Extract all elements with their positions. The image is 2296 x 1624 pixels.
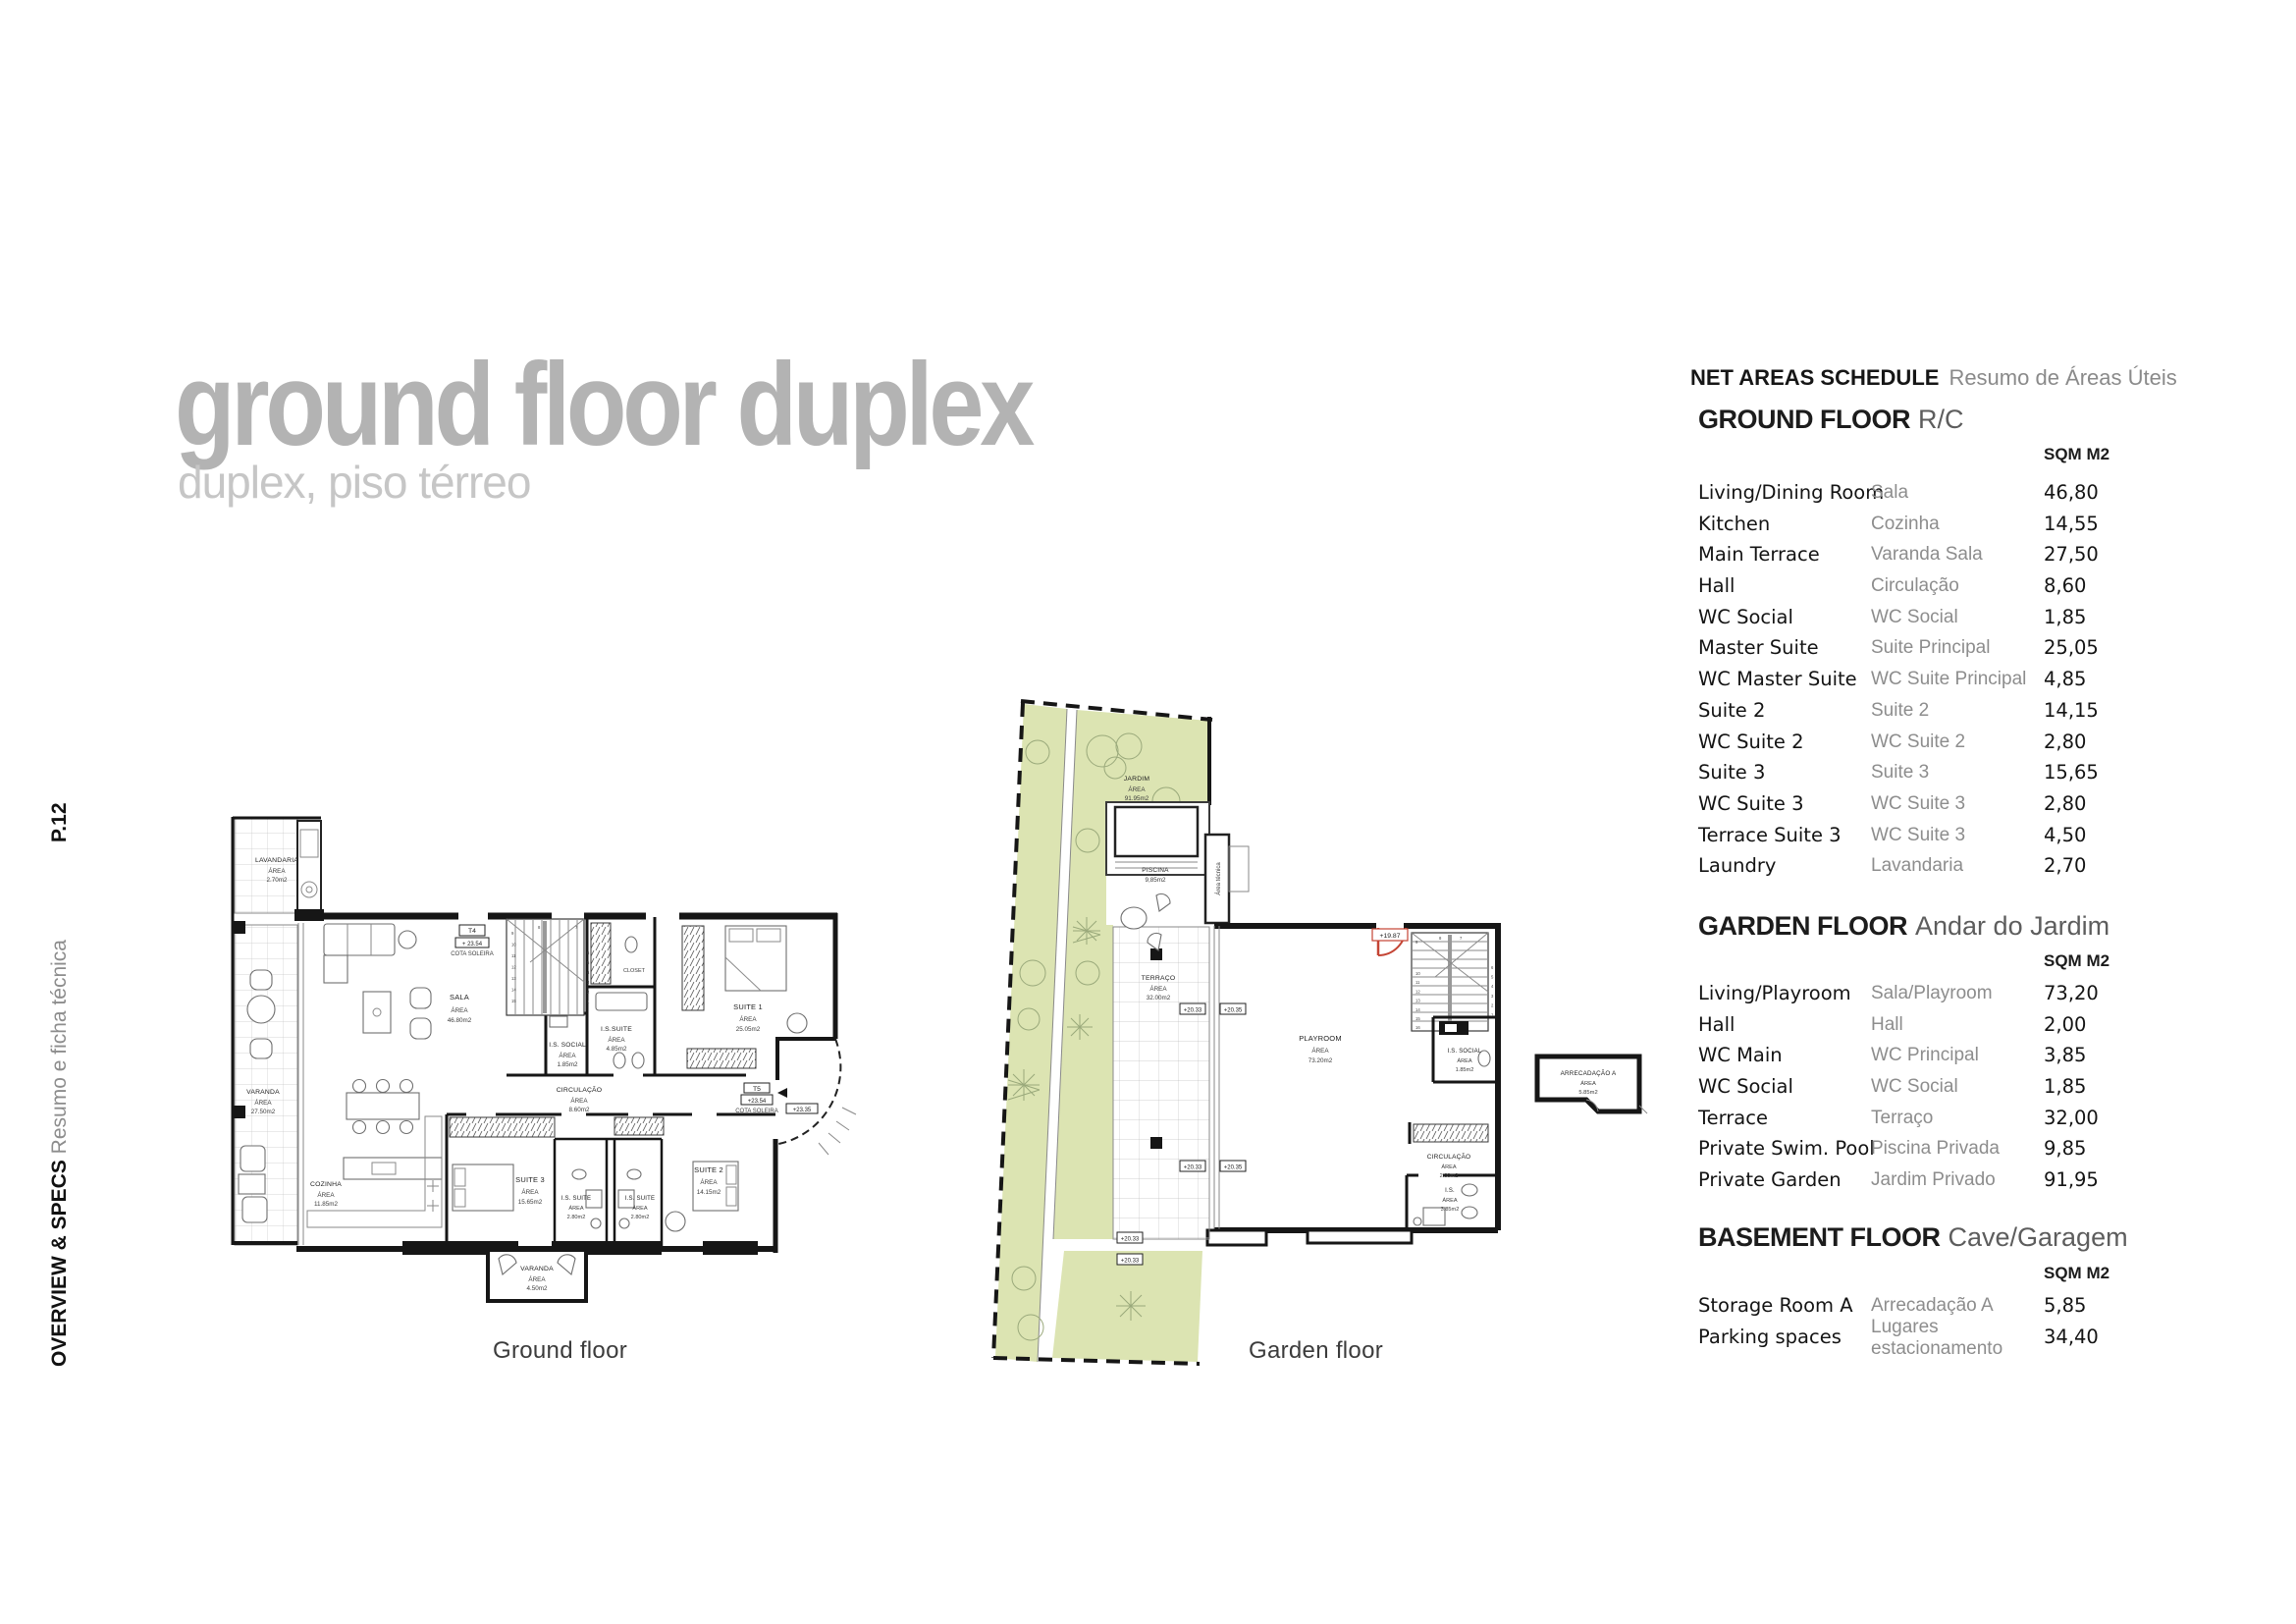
row-pt: Piscina Privada — [1871, 1138, 2000, 1160]
row-en: WC Suite 3 — [1698, 792, 1804, 815]
svg-text:25.05m2: 25.05m2 — [736, 1026, 761, 1033]
row-val: 25,05 — [2044, 636, 2099, 659]
table-row: WC MainWC Principal3,85 — [1690, 1044, 2162, 1075]
svg-text:ÁREA: ÁREA — [1580, 1080, 1596, 1087]
svg-text:4.50m2: 4.50m2 — [526, 1285, 548, 1292]
table-row: WC Master SuiteWC Suite Principal4,85 — [1690, 668, 2162, 699]
stair-number: 4 — [1491, 984, 1494, 989]
table-row: TerraceTerraço32,00 — [1690, 1107, 2162, 1138]
table-row: WC Suite 2WC Suite 22,80 — [1690, 731, 2162, 762]
svg-text:4.85m2: 4.85m2 — [606, 1046, 627, 1053]
row-en: WC Main — [1698, 1044, 1783, 1066]
svg-text:+20.35: +20.35 — [1224, 1165, 1243, 1171]
row-val: 2,80 — [2044, 792, 2086, 815]
section-heading: BASEMENT FLOORCave/Garagem — [1698, 1222, 2128, 1253]
section-heading: GARDEN FLOORAndar do Jardim — [1698, 911, 2109, 942]
row-pt: WC Social — [1871, 607, 1958, 628]
svg-text:ÁREA: ÁREA — [317, 1190, 335, 1199]
marker-t5-level: +23.54 — [748, 1099, 767, 1105]
section-heading-pt: R/C — [1918, 405, 1964, 434]
row-val: 2,00 — [2044, 1013, 2086, 1036]
svg-text:ÁREA: ÁREA — [568, 1205, 584, 1212]
svg-text:ÁREA: ÁREA — [1457, 1057, 1472, 1064]
svg-text:5.85m2: 5.85m2 — [1578, 1090, 1597, 1096]
page-number: P.12 — [49, 803, 70, 843]
stair-number: 13 — [1415, 999, 1420, 1003]
svg-text:32.00m2: 32.00m2 — [1147, 995, 1171, 1001]
stair-number: 10 — [511, 943, 516, 947]
svg-text:ÁREA: ÁREA — [570, 1096, 588, 1105]
row-pt: Lugares estacionamento — [1871, 1317, 2002, 1360]
svg-text:1.85m2: 1.85m2 — [557, 1061, 578, 1068]
svg-text:ÁREA: ÁREA — [700, 1177, 718, 1186]
svg-text:ÁREA: ÁREA — [521, 1187, 539, 1196]
ground-stairs — [507, 919, 584, 1015]
label-suite2: SUITE 2 — [694, 1165, 723, 1174]
row-pt: Sala — [1871, 482, 1908, 504]
section-rows: Storage Room AArrecadação A5,85Parking s… — [1690, 1294, 2162, 1356]
row-val: 2,70 — [2044, 854, 2086, 877]
row-en: Living/Playroom — [1698, 982, 1851, 1004]
label-g-circulacao: CIRCULAÇÃO — [1427, 1152, 1471, 1161]
table-row: KitchenCozinha14,55 — [1690, 513, 2162, 544]
marker-door-level: +19.87 — [1380, 933, 1401, 940]
label-is-social: I.S. SOCIAL — [549, 1042, 586, 1049]
stair-number: 16 — [1415, 1025, 1420, 1030]
row-pt: WC Suite Principal — [1871, 669, 2026, 690]
row-en: Laundry — [1698, 854, 1776, 877]
schedule-header: NET AREAS SCHEDULEResumo de Áreas Úteis — [1690, 365, 2177, 391]
row-val: 3,85 — [2044, 1044, 2086, 1066]
table-row: Suite 2Suite 214,15 — [1690, 699, 2162, 731]
row-pt: Terraço — [1871, 1108, 1933, 1129]
label-sala: SALA — [450, 993, 469, 1001]
page-subtitle: duplex, piso térreo — [178, 460, 530, 505]
svg-text:ÁREA: ÁREA — [254, 1098, 272, 1107]
label-cozinha: COZINHA — [310, 1181, 342, 1188]
section-heading: GROUND FLOORR/C — [1698, 405, 1964, 435]
label-playroom: PLAYROOM — [1299, 1034, 1342, 1043]
unit-label: SQM M2 — [2044, 445, 2109, 464]
svg-text:ÁREA: ÁREA — [608, 1035, 625, 1044]
row-en: WC Social — [1698, 1075, 1793, 1098]
stair-number: 5 — [1491, 975, 1494, 980]
stair-number: 15 — [1415, 1016, 1420, 1021]
label-terraco: TERRAÇO — [1142, 975, 1176, 982]
row-val: 1,85 — [2044, 1075, 2086, 1098]
svg-text:27.50m2: 27.50m2 — [251, 1109, 276, 1115]
svg-text:ÁREA: ÁREA — [559, 1051, 576, 1059]
section-rows: Living/PlayroomSala/Playroom73,20HallHal… — [1690, 982, 2162, 1200]
table-row: LaundryLavandaria2,70 — [1690, 854, 2162, 886]
marker-t5-cota: COTA SOLEIRA — [735, 1109, 778, 1114]
svg-text:ÁREA: ÁREA — [632, 1205, 648, 1212]
svg-text:+20.33: +20.33 — [1121, 1259, 1140, 1265]
row-pt: Sala/Playroom — [1871, 983, 1993, 1004]
page-number-label: P.12 — [48, 803, 71, 843]
table-row: Living/PlayroomSala/Playroom73,20 — [1690, 982, 2162, 1013]
row-pt: Suite Principal — [1871, 637, 1990, 659]
row-val: 32,00 — [2044, 1107, 2099, 1129]
label-suite3: SUITE 3 — [515, 1175, 545, 1184]
page: ground floor duplex duplex, piso térreo … — [0, 0, 2296, 1624]
table-row: WC Suite 3WC Suite 32,80 — [1690, 792, 2162, 824]
svg-text:ÁREA: ÁREA — [1128, 785, 1146, 793]
svg-text:1.85m2: 1.85m2 — [1456, 1067, 1474, 1073]
row-val: 14,55 — [2044, 513, 2099, 535]
svg-text:ÁREA: ÁREA — [528, 1274, 546, 1283]
svg-text:15.65m2: 15.65m2 — [518, 1199, 543, 1206]
table-row: HallCirculação8,60 — [1690, 574, 2162, 606]
row-val: 27,50 — [2044, 543, 2099, 566]
unit-label: SQM M2 — [2044, 951, 2109, 971]
row-val: 14,15 — [2044, 699, 2099, 722]
row-en: Living/Dining Room — [1698, 481, 1884, 504]
unit-label: SQM M2 — [2044, 1264, 2109, 1283]
label-is-suite2: I.S. SUITE — [625, 1196, 655, 1202]
row-pt: WC Suite 3 — [1871, 825, 1965, 846]
stair-number: 3 — [587, 980, 590, 985]
svg-text:+20.33: +20.33 — [1184, 1008, 1202, 1014]
svg-text:8.60m2: 8.60m2 — [568, 1107, 590, 1113]
row-pt: Arrecadação A — [1871, 1295, 1994, 1317]
row-en: Master Suite — [1698, 636, 1819, 659]
stair-number: 14 — [511, 988, 516, 993]
svg-text:ÁREA: ÁREA — [268, 866, 286, 875]
marker-t4: T4 — [468, 928, 476, 935]
row-en: Parking spaces — [1698, 1326, 1842, 1348]
section-heading-en: GROUND FLOOR — [1698, 405, 1910, 434]
row-pt: Cozinha — [1871, 514, 1940, 535]
side-subheading: Resumo e ficha técnica — [48, 940, 71, 1154]
page-title: ground floor duplex — [175, 346, 1031, 463]
row-val: 73,20 — [2044, 982, 2099, 1004]
section-heading-pt: Andar do Jardim — [1915, 911, 2109, 941]
row-en: Storage Room A — [1698, 1294, 1853, 1317]
marker-cota: +23.35 — [793, 1108, 812, 1113]
stair-number: 5 — [587, 960, 590, 965]
label-arrecadacao: ARRECADAÇÃO A — [1561, 1068, 1617, 1077]
row-val: 1,85 — [2044, 606, 2086, 628]
table-row: Private GardenJardim Privado91,95 — [1690, 1168, 2162, 1200]
row-val: 34,40 — [2044, 1326, 2099, 1348]
table-row: Suite 3Suite 315,65 — [1690, 761, 2162, 792]
label-jardim: JARDIM — [1124, 776, 1150, 783]
svg-text:73.20m2: 73.20m2 — [1308, 1057, 1333, 1064]
row-val: 4,50 — [2044, 824, 2086, 846]
svg-text:11.85m2: 11.85m2 — [314, 1201, 339, 1208]
row-pt: Suite 3 — [1871, 762, 1929, 784]
row-val: 4,85 — [2044, 668, 2086, 690]
stair-number: 11 — [511, 953, 516, 958]
row-pt: WC Suite 3 — [1871, 793, 1965, 815]
row-en: Terrace Suite 3 — [1698, 824, 1842, 846]
row-val: 2,80 — [2044, 731, 2086, 753]
label-area-tecnica: Área técnica — [1215, 862, 1222, 895]
section-rows: Living/Dining RoomSala46,80KitchenCozinh… — [1690, 481, 2162, 886]
label-is-suite: I.S.SUITE — [601, 1026, 632, 1033]
table-row: Living/Dining RoomSala46,80 — [1690, 481, 2162, 513]
label-g-is: I.S. — [1445, 1188, 1455, 1194]
marker-t4-cota: COTA SOLEIRA — [451, 951, 494, 957]
label-suite1: SUITE 1 — [733, 1002, 763, 1011]
row-en: WC Suite 2 — [1698, 731, 1804, 753]
schedule-title-pt: Resumo de Áreas Úteis — [1949, 365, 2176, 390]
row-val: 9,85 — [2044, 1137, 2086, 1160]
stair-number: 2 — [1491, 1002, 1494, 1007]
svg-text:2.70m2: 2.70m2 — [266, 877, 288, 884]
row-pt: Lavandaria — [1871, 855, 1963, 877]
svg-text:ÁREA: ÁREA — [451, 1005, 468, 1014]
schedule-title-en: NET AREAS SCHEDULE — [1690, 365, 1939, 390]
stair-number: 12 — [511, 965, 516, 970]
row-en: Suite 3 — [1698, 761, 1765, 784]
table-row: Private Swim. PoolPiscina Privada9,85 — [1690, 1137, 2162, 1168]
stair-number: 3 — [1491, 994, 1494, 999]
ground-floor-plan: T4 + 23.54 COTA SOLEIRA T5 +23.54 COTA S… — [221, 800, 888, 1350]
marker-t4-level: + 23.54 — [462, 942, 483, 947]
stair-number: 4 — [587, 970, 590, 975]
svg-text:14.15m2: 14.15m2 — [697, 1189, 721, 1196]
stair-number: 10 — [1415, 971, 1420, 976]
stair-number: 15 — [511, 999, 516, 1003]
side-heading: OVERVIEW & SPECS — [48, 1160, 71, 1367]
marker-t5: T5 — [753, 1086, 761, 1093]
row-pt: Varanda Sala — [1871, 544, 1983, 566]
svg-text:46.80m2: 46.80m2 — [448, 1017, 472, 1024]
table-row: Terrace Suite 3WC Suite 34,50 — [1690, 824, 2162, 855]
section-heading-en: BASEMENT FLOOR — [1698, 1222, 1941, 1252]
row-pt: Hall — [1871, 1014, 1903, 1036]
stair-number: 14 — [1415, 1007, 1420, 1012]
label-varanda: VARANDA — [246, 1089, 280, 1096]
row-val: 91,95 — [2044, 1168, 2099, 1191]
stair-number: 6 — [587, 950, 590, 955]
svg-text:3.85m2: 3.85m2 — [1441, 1207, 1460, 1213]
svg-text:2.00m2: 2.00m2 — [1440, 1173, 1459, 1179]
row-pt: Suite 2 — [1871, 700, 1929, 722]
row-en: Hall — [1698, 574, 1735, 597]
section-heading-pt: Cave/Garagem — [1949, 1222, 2128, 1252]
stair-number: 13 — [511, 976, 516, 981]
label-lavandaria: LAVANDARIA — [255, 857, 298, 864]
label-varanda-sul: VARANDA — [520, 1266, 554, 1272]
row-val: 5,85 — [2044, 1294, 2086, 1317]
row-en: WC Social — [1698, 606, 1793, 628]
row-pt: Circulação — [1871, 575, 1959, 597]
row-en: WC Master Suite — [1698, 668, 1857, 690]
table-row: WC SocialWC Social1,85 — [1690, 606, 2162, 637]
table-row: Parking spacesLugares estacionamento34,4… — [1690, 1326, 2162, 1357]
table-row: HallHall2,00 — [1690, 1013, 2162, 1045]
svg-text:ÁREA: ÁREA — [1442, 1197, 1458, 1204]
svg-text:ÁREA: ÁREA — [739, 1014, 757, 1023]
svg-text:+20.35: +20.35 — [1224, 1008, 1243, 1014]
row-en: Private Swim. Pool — [1698, 1137, 1875, 1160]
row-en: Kitchen — [1698, 513, 1770, 535]
svg-text:ÁREA: ÁREA — [1149, 984, 1167, 993]
label-closet: CLOSET — [623, 968, 646, 974]
garden-floor-plan: +19.87 +20.33 +20.35 +20.33 +20.35 +20.3… — [987, 692, 1512, 1380]
row-val: 46,80 — [2044, 481, 2099, 504]
stair-number: 1 — [587, 1000, 590, 1004]
svg-text:2.80m2: 2.80m2 — [567, 1215, 586, 1220]
row-en: Terrace — [1698, 1107, 1768, 1129]
label-g-is-social: I.S. SOCIAL — [1448, 1049, 1482, 1055]
row-val: 15,65 — [2044, 761, 2099, 784]
label-is-suite3: I.S. SUITE — [561, 1196, 591, 1202]
table-row: Master SuiteSuite Principal25,05 — [1690, 636, 2162, 668]
stair-number: 12 — [1415, 989, 1420, 994]
svg-text:91.95m2: 91.95m2 — [1125, 795, 1149, 802]
svg-text:ÁREA: ÁREA — [1311, 1046, 1329, 1055]
stair-number: 6 — [1491, 965, 1494, 970]
row-val: 8,60 — [2044, 574, 2086, 597]
svg-text:+20.33: +20.33 — [1184, 1165, 1202, 1171]
label-piscina: PISCINA — [1142, 867, 1169, 874]
stair-number: 11 — [1415, 980, 1420, 985]
row-en: Main Terrace — [1698, 543, 1820, 566]
table-row: Main TerraceVaranda Sala27,50 — [1690, 543, 2162, 574]
svg-text:ÁREA: ÁREA — [1441, 1164, 1457, 1170]
row-pt: Jardim Privado — [1871, 1169, 1996, 1191]
storage-room-plan: ARRECADAÇÃO A ÁREA 5.85m2 — [1527, 1047, 1655, 1125]
stair-number: 2 — [587, 990, 590, 995]
label-circulacao: CIRCULAÇÃO — [557, 1085, 603, 1094]
svg-text:2.80m2: 2.80m2 — [631, 1215, 650, 1220]
side-label: OVERVIEW & SPECS Resumo e ficha técnica — [49, 940, 70, 1367]
section-heading-en: GARDEN FLOOR — [1698, 911, 1907, 941]
row-en: Suite 2 — [1698, 699, 1765, 722]
row-pt: WC Suite 2 — [1871, 731, 1965, 753]
row-en: Hall — [1698, 1013, 1735, 1036]
ground-structure — [233, 817, 856, 1301]
row-en: Private Garden — [1698, 1168, 1842, 1191]
svg-text:+20.33: +20.33 — [1121, 1237, 1140, 1243]
row-pt: WC Social — [1871, 1076, 1958, 1098]
row-pt: WC Principal — [1871, 1045, 1979, 1066]
svg-text:9,85m2: 9,85m2 — [1145, 877, 1166, 884]
table-row: WC SocialWC Social1,85 — [1690, 1075, 2162, 1107]
